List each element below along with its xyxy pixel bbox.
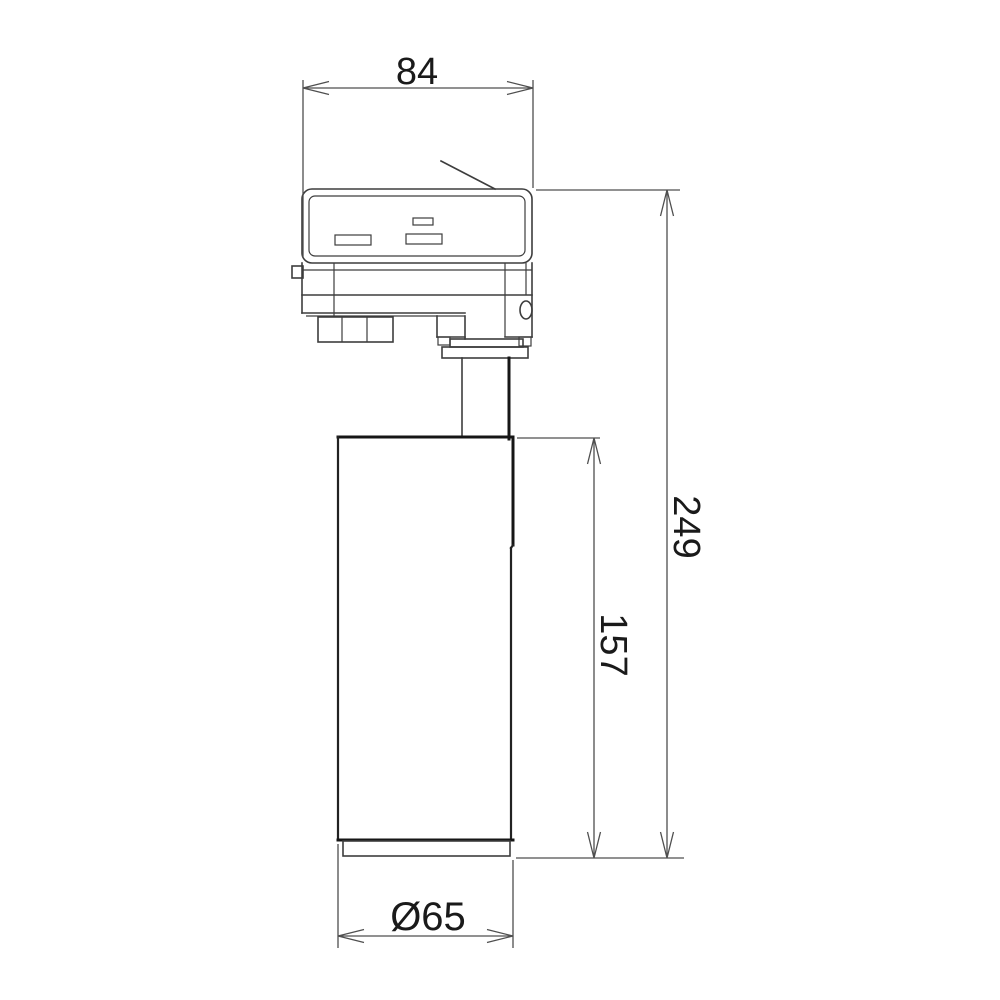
adapter-mid-section	[292, 263, 532, 358]
dimension-label-top-width: 84	[396, 51, 438, 93]
step-notch	[438, 337, 450, 345]
dimension-label-body-height: 157	[592, 613, 634, 676]
track-spotlight-dimension-drawing: 84 249 157 Ø65	[0, 0, 1000, 1000]
adapter-head-inner-wall	[309, 196, 525, 256]
terminal-block-row	[318, 317, 393, 342]
stem	[462, 358, 509, 439]
flange-lower	[442, 347, 528, 358]
dimension-body-height: 157	[517, 438, 634, 858]
contact-slot-left	[335, 235, 371, 245]
dimension-diameter: Ø65	[338, 844, 513, 948]
track-adapter-head	[302, 161, 532, 263]
locking-lever	[441, 161, 495, 189]
dimension-label-diameter: Ø65	[390, 895, 466, 939]
contact-slot-middle	[406, 234, 442, 244]
contact-slot-small	[413, 218, 433, 225]
flange-upper	[450, 339, 523, 347]
dimension-top-width: 84	[303, 51, 533, 258]
dimension-overall-height: 249	[516, 190, 707, 858]
screw-hole	[520, 301, 532, 319]
bezel-ring	[343, 841, 510, 856]
adapter-head-outer-shell	[302, 189, 532, 263]
dimension-label-overall-height: 249	[665, 495, 707, 558]
bezel-outline	[343, 841, 510, 856]
cylinder-body	[338, 437, 513, 840]
technical-drawing-canvas: 84 249 157 Ø65	[0, 0, 1000, 1000]
